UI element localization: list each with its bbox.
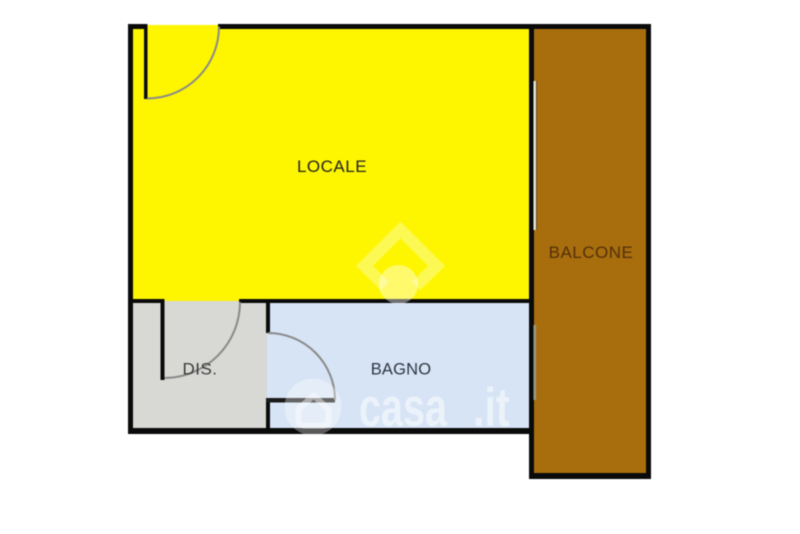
svg-text:casa: casa <box>359 378 447 439</box>
svg-text:BALCONE: BALCONE <box>549 243 634 262</box>
svg-text:BAGNO: BAGNO <box>371 361 432 379</box>
svg-text:.it: .it <box>473 377 510 438</box>
svg-text:LOCALE: LOCALE <box>297 157 367 176</box>
svg-text:DIS.: DIS. <box>182 360 217 379</box>
